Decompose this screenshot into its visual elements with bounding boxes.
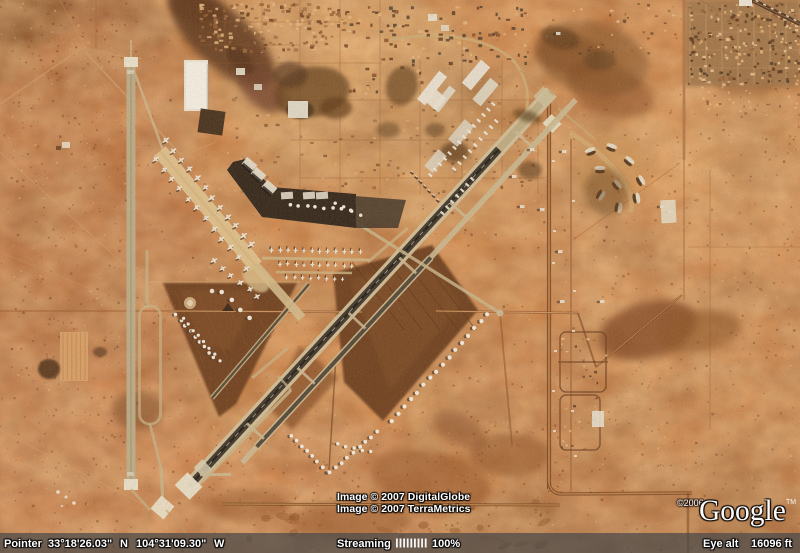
svg-text:Pointer: Pointer [4,538,43,550]
svg-text:Google: Google [699,495,786,527]
svg-text:Image © 2007 TerraMetrics: Image © 2007 TerraMetrics [337,504,471,515]
svg-text:Image © 2007 DigitalGlobe: Image © 2007 DigitalGlobe [337,492,470,503]
svg-text:100%: 100% [432,538,460,550]
svg-text:Streaming: Streaming [337,538,391,550]
svg-text:104°31'09.30": 104°31'09.30" [136,538,206,550]
svg-text:Eye alt: Eye alt [703,538,739,550]
svg-text:N: N [120,538,128,550]
svg-text:W: W [214,538,225,550]
svg-text:16096 ft: 16096 ft [751,538,792,550]
svg-text:TM: TM [786,499,796,506]
svg-text:33°18'26.03": 33°18'26.03" [48,538,112,550]
